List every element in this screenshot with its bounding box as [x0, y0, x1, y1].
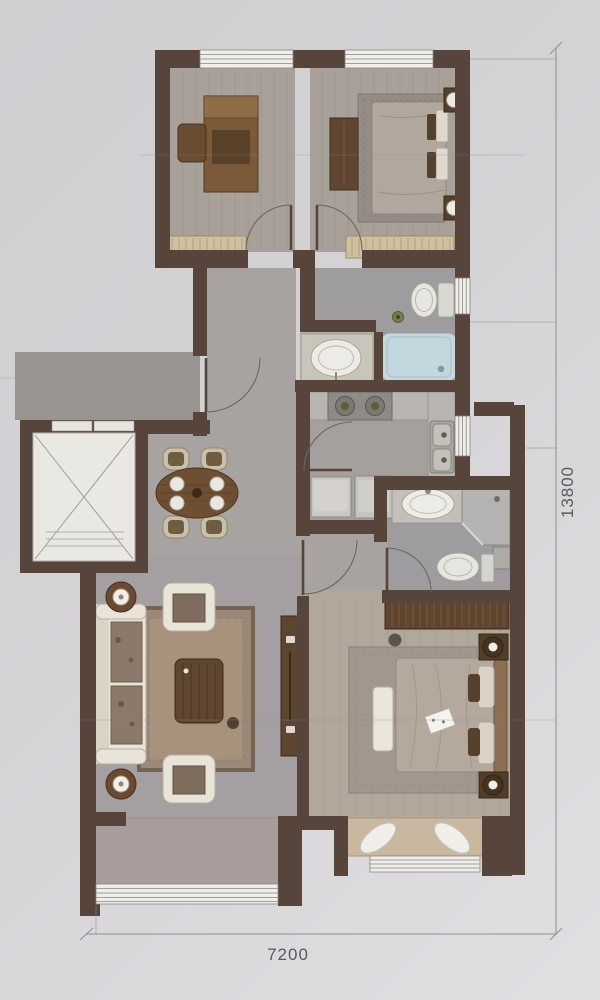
sofa-cushion — [111, 686, 142, 744]
lamp-center — [119, 782, 124, 787]
wall — [297, 596, 309, 818]
wall — [300, 320, 376, 332]
lamp-center — [489, 643, 498, 652]
cushion-texture — [115, 637, 121, 643]
wall — [374, 476, 512, 490]
tv-cabinet-knob — [286, 636, 295, 643]
wall — [455, 314, 470, 416]
wall — [148, 420, 210, 434]
wall — [482, 816, 512, 876]
wall — [474, 402, 514, 416]
cushion-texture — [129, 658, 134, 663]
sofa-back — [96, 604, 109, 764]
wall — [155, 250, 248, 268]
wall — [334, 830, 348, 876]
wall — [155, 50, 170, 268]
plate-icon — [170, 496, 184, 510]
width-dimension-label: 7200 — [267, 945, 309, 964]
wall — [293, 50, 345, 68]
floor-plan-photo: 7200 13800 — [0, 0, 600, 1000]
balcony-window — [96, 884, 278, 904]
bathtub — [382, 333, 456, 381]
wall — [295, 380, 465, 392]
sofa-arm — [96, 749, 146, 764]
wall — [293, 250, 315, 268]
bathtub-drain — [438, 366, 444, 372]
chair-cushion — [168, 520, 184, 534]
chair-cushion — [168, 452, 184, 466]
table-centerpiece — [192, 488, 202, 498]
bed-bench — [373, 687, 393, 751]
chair-cushion — [206, 520, 222, 534]
burner-center — [371, 402, 379, 410]
faucet-icon — [441, 432, 447, 438]
bed-cushion — [427, 152, 436, 178]
balcony-floor — [96, 818, 278, 886]
wall — [82, 812, 126, 826]
wall — [455, 456, 470, 478]
desk-panel — [212, 130, 250, 164]
plant-center — [396, 315, 400, 319]
wall — [302, 520, 386, 534]
elevator-door — [52, 421, 92, 431]
wall — [362, 250, 470, 268]
height-dimension-label: 13800 — [558, 466, 577, 518]
bed-pillow — [478, 666, 494, 708]
suite-foyer-floor — [302, 534, 387, 596]
plate-icon — [210, 477, 224, 491]
desk-shelf — [204, 96, 258, 118]
bath-cabinet — [493, 547, 510, 569]
cushion-texture — [130, 722, 135, 727]
chair-cushion — [206, 452, 222, 466]
bed-cushion — [468, 674, 480, 702]
wall — [374, 332, 383, 383]
floor-decor — [389, 634, 402, 647]
wall — [374, 490, 387, 542]
elevator-door — [94, 421, 134, 431]
toilet-icon — [437, 553, 479, 581]
floor-decor — [227, 717, 239, 729]
bed-pillow — [436, 148, 448, 180]
headboard — [494, 660, 507, 772]
wall — [510, 405, 525, 875]
cushion-texture — [118, 701, 124, 707]
wall — [382, 590, 512, 603]
public-corridor-floor — [15, 352, 200, 420]
bed-pillow — [478, 722, 494, 764]
table-decor — [184, 669, 189, 674]
bed-pillow — [436, 110, 448, 142]
sofa-cushion — [111, 622, 142, 682]
lamp-center — [489, 781, 498, 790]
lamp-center — [119, 595, 124, 600]
plate-icon — [170, 477, 184, 491]
appliance-top — [314, 480, 348, 511]
wall — [278, 816, 348, 830]
elevator — [20, 420, 148, 573]
wall — [296, 392, 310, 470]
tv-cabinet-knob — [286, 726, 295, 733]
wall — [455, 50, 470, 278]
armchair-cushion — [173, 594, 205, 622]
bed-cushion — [427, 114, 436, 140]
armchair-cushion — [173, 766, 205, 794]
toilet-tank — [481, 554, 494, 582]
desk-chair — [178, 124, 206, 162]
bed-cushion — [468, 728, 480, 756]
burner-center — [341, 402, 349, 410]
wall — [193, 268, 207, 356]
wall — [278, 830, 302, 906]
faucet-icon — [441, 457, 447, 463]
toilet-tank — [438, 283, 454, 317]
shower-drain — [494, 496, 500, 502]
wall — [80, 556, 96, 916]
plate-icon — [210, 496, 224, 510]
floor-plan-drawing: 7200 13800 — [0, 0, 600, 1000]
